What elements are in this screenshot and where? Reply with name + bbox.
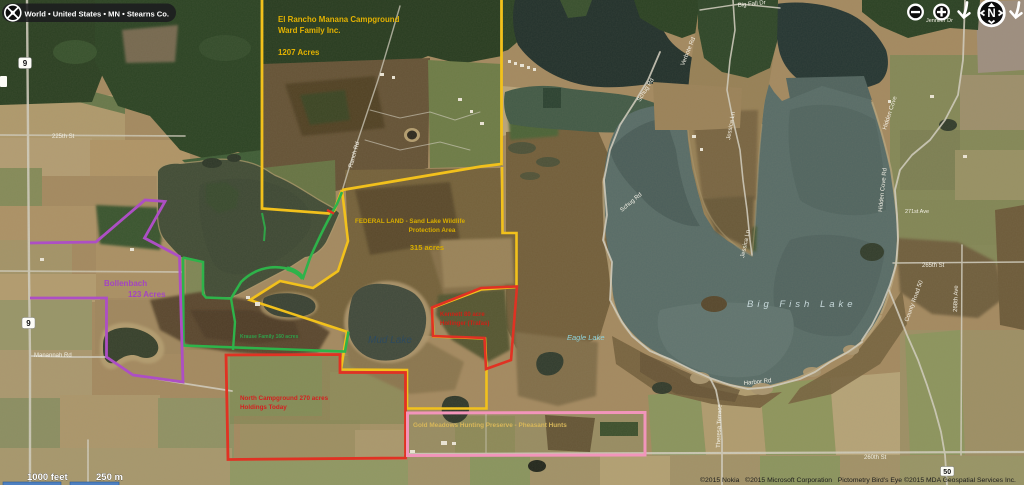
svg-text:Gold Meadows Hunting Preserve: Gold Meadows Hunting Preserve - Pheasant… — [413, 422, 567, 429]
svg-text:Ward Family Inc.: Ward Family Inc. — [278, 26, 340, 35]
svg-text:Kennett 80 acre: Kennett 80 acre — [440, 312, 485, 318]
svg-text:268th Ave: 268th Ave — [953, 285, 960, 312]
svg-text:N: N — [987, 8, 995, 20]
svg-text:123 Acres: 123 Acres — [128, 290, 166, 299]
svg-text:315 acres: 315 acres — [410, 243, 444, 252]
svg-text:9: 9 — [23, 59, 28, 68]
svg-text:FEDERAL LAND - Sand Lake Wildl: FEDERAL LAND - Sand Lake Wildlife — [355, 218, 466, 225]
svg-text:9: 9 — [26, 319, 31, 328]
svg-text:250 m: 250 m — [96, 472, 123, 483]
svg-text:Manannah Rd: Manannah Rd — [34, 353, 72, 359]
svg-text:Protection Area: Protection Area — [409, 227, 456, 234]
svg-text:El Rancho Manana Campground: El Rancho Manana Campground — [278, 15, 400, 24]
svg-text:Bollenbach: Bollenbach — [104, 279, 147, 288]
svg-text:50: 50 — [943, 469, 951, 476]
svg-text:225th St: 225th St — [52, 134, 75, 140]
svg-text:Eagle Lake: Eagle Lake — [567, 333, 605, 342]
svg-text:1000 feet: 1000 feet — [27, 472, 69, 483]
svg-text:World • United States • MN • S: World • United States • MN • Stearns Co. — [25, 10, 170, 19]
svg-text:260th St: 260th St — [864, 455, 887, 461]
svg-text:Big Fish Lake: Big Fish Lake — [747, 299, 857, 310]
svg-text:Mud Lake: Mud Lake — [368, 335, 412, 346]
svg-text:©2015 Nokia ©2015 Microsoft: ©2015 Nokia ©2015 Microsoft Corporation … — [700, 476, 1016, 484]
svg-text:North Campground 270 acres: North Campground 270 acres — [240, 395, 329, 402]
svg-text:Hollinger (Trafas): Hollinger (Trafas) — [440, 321, 489, 327]
svg-text:Krause Family 160 acres: Krause Family 160 acres — [240, 334, 299, 340]
svg-text:271st Ave: 271st Ave — [905, 209, 929, 215]
svg-text:1207 Acres: 1207 Acres — [278, 48, 320, 57]
svg-text:265th St: 265th St — [922, 263, 945, 269]
svg-text:Holdings Today: Holdings Today — [240, 404, 287, 411]
